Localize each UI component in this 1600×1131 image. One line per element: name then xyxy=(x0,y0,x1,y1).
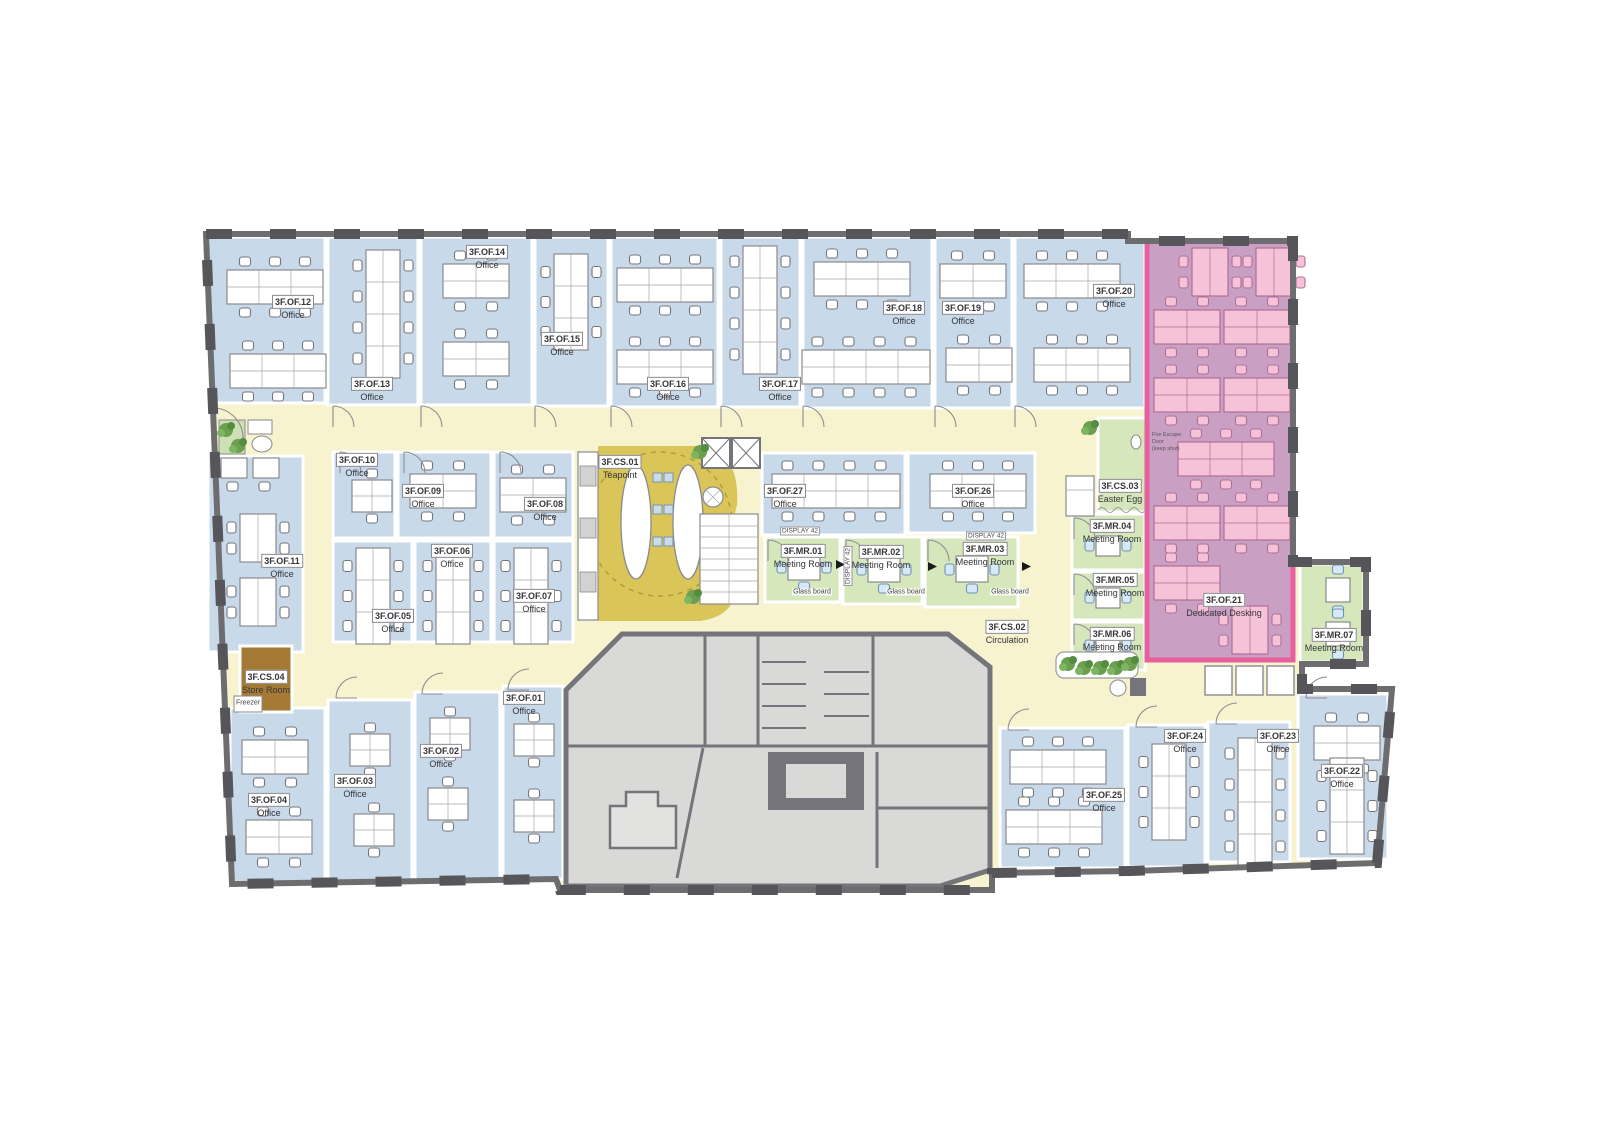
room-label-3f-of-04: 3F.OF.04Office xyxy=(248,793,290,819)
room-label-3f-cs-02: 3F.CS.02Circulation xyxy=(985,620,1028,646)
room-label-3f-mr-01: 3F.MR.01Meeting Room xyxy=(774,544,833,570)
room-label-3f-of-22: 3F.OF.22Office xyxy=(1321,764,1363,790)
building-core xyxy=(566,634,990,886)
room-label-3f-of-19: 3F.OF.19Office xyxy=(942,301,984,327)
display-label-2: DISPLAY 42 xyxy=(844,546,853,586)
room-label-3f-mr-02: 3F.MR.02Meeting Room xyxy=(852,545,911,571)
room-label-3f-of-23: 3F.OF.23Office xyxy=(1257,729,1299,755)
room-label-3f-of-15: 3F.OF.15Office xyxy=(541,332,583,358)
room-label-3f-cs-04: 3F.CS.04Store Room xyxy=(242,670,290,696)
room-label-3f-of-25: 3F.OF.25Office xyxy=(1083,788,1125,814)
fire-escape-note: Fire Escape Door (keep shut) xyxy=(1152,432,1181,453)
room-label-3f-mr-05: 3F.MR.05Meeting Room xyxy=(1086,573,1145,599)
glass-board-label-2: Glass board xyxy=(886,589,926,596)
room-label-3f-of-13: 3F.OF.13Office xyxy=(351,377,393,403)
room-label-3f-of-08: 3F.OF.08Office xyxy=(524,497,566,523)
room-label-3f-mr-07: 3F.MR.07Meeting Room xyxy=(1305,628,1364,654)
room-label-3f-of-01: 3F.OF.01Office xyxy=(503,691,545,717)
room-label-3f-of-02: 3F.OF.02Office xyxy=(420,744,462,770)
room-label-3f-of-09: 3F.OF.09Office xyxy=(402,484,444,510)
room-label-3f-mr-04: 3F.MR.04Meeting Room xyxy=(1083,519,1142,545)
room-label-3f-of-18: 3F.OF.18Office xyxy=(883,301,925,327)
display-label-1: DISPLAY 42 xyxy=(780,527,820,536)
display-label-3: DISPLAY 42 xyxy=(966,532,1006,541)
room-label-3f-of-03: 3F.OF.03Office xyxy=(334,774,376,800)
freezer-label: Freezer xyxy=(235,700,261,707)
room-label-3f-of-10: 3F.OF.10Office xyxy=(336,453,378,479)
room-label-3f-of-16: 3F.OF.16Office xyxy=(647,377,689,403)
room-label-3f-of-24: 3F.OF.24Office xyxy=(1164,729,1206,755)
room-label-3f-cs-01: 3F.CS.01Teapoint xyxy=(598,455,641,481)
room-label-3f-mr-06: 3F.MR.06Meeting Room xyxy=(1083,627,1142,653)
floor-plan: 3F.OF.12Office 3F.OF.13Office 3F.OF.14Of… xyxy=(0,0,1600,1131)
room-label-3f-cs-03: 3F.CS.03Easter Egg xyxy=(1098,479,1143,505)
glass-board-label-3: Glass board xyxy=(990,589,1030,596)
room-label-3f-of-05: 3F.OF.05Office xyxy=(372,609,414,635)
room-label-3f-of-11: 3F.OF.11Office xyxy=(261,554,303,580)
room-label-3f-mr-03: 3F.MR.03Meeting Room xyxy=(956,542,1015,568)
room-label-3f-of-14: 3F.OF.14Office xyxy=(466,245,508,271)
room-label-3f-of-17: 3F.OF.17Office xyxy=(759,377,801,403)
room-label-3f-of-06: 3F.OF.06Office xyxy=(431,544,473,570)
room-label-3f-of-20: 3F.OF.20Office xyxy=(1093,284,1135,310)
room-label-3f-of-12: 3F.OF.12Office xyxy=(272,295,314,321)
room-label-3f-of-27: 3F.OF.27Office xyxy=(764,484,806,510)
room-label-3f-of-26: 3F.OF.26Office xyxy=(952,484,994,510)
glass-board-label-1: Glass board xyxy=(792,589,832,596)
room-label-3f-of-07: 3F.OF.07Office xyxy=(513,589,555,615)
room-label-3f-of-21: 3F.OF.21Dedicated Desking xyxy=(1186,593,1262,619)
